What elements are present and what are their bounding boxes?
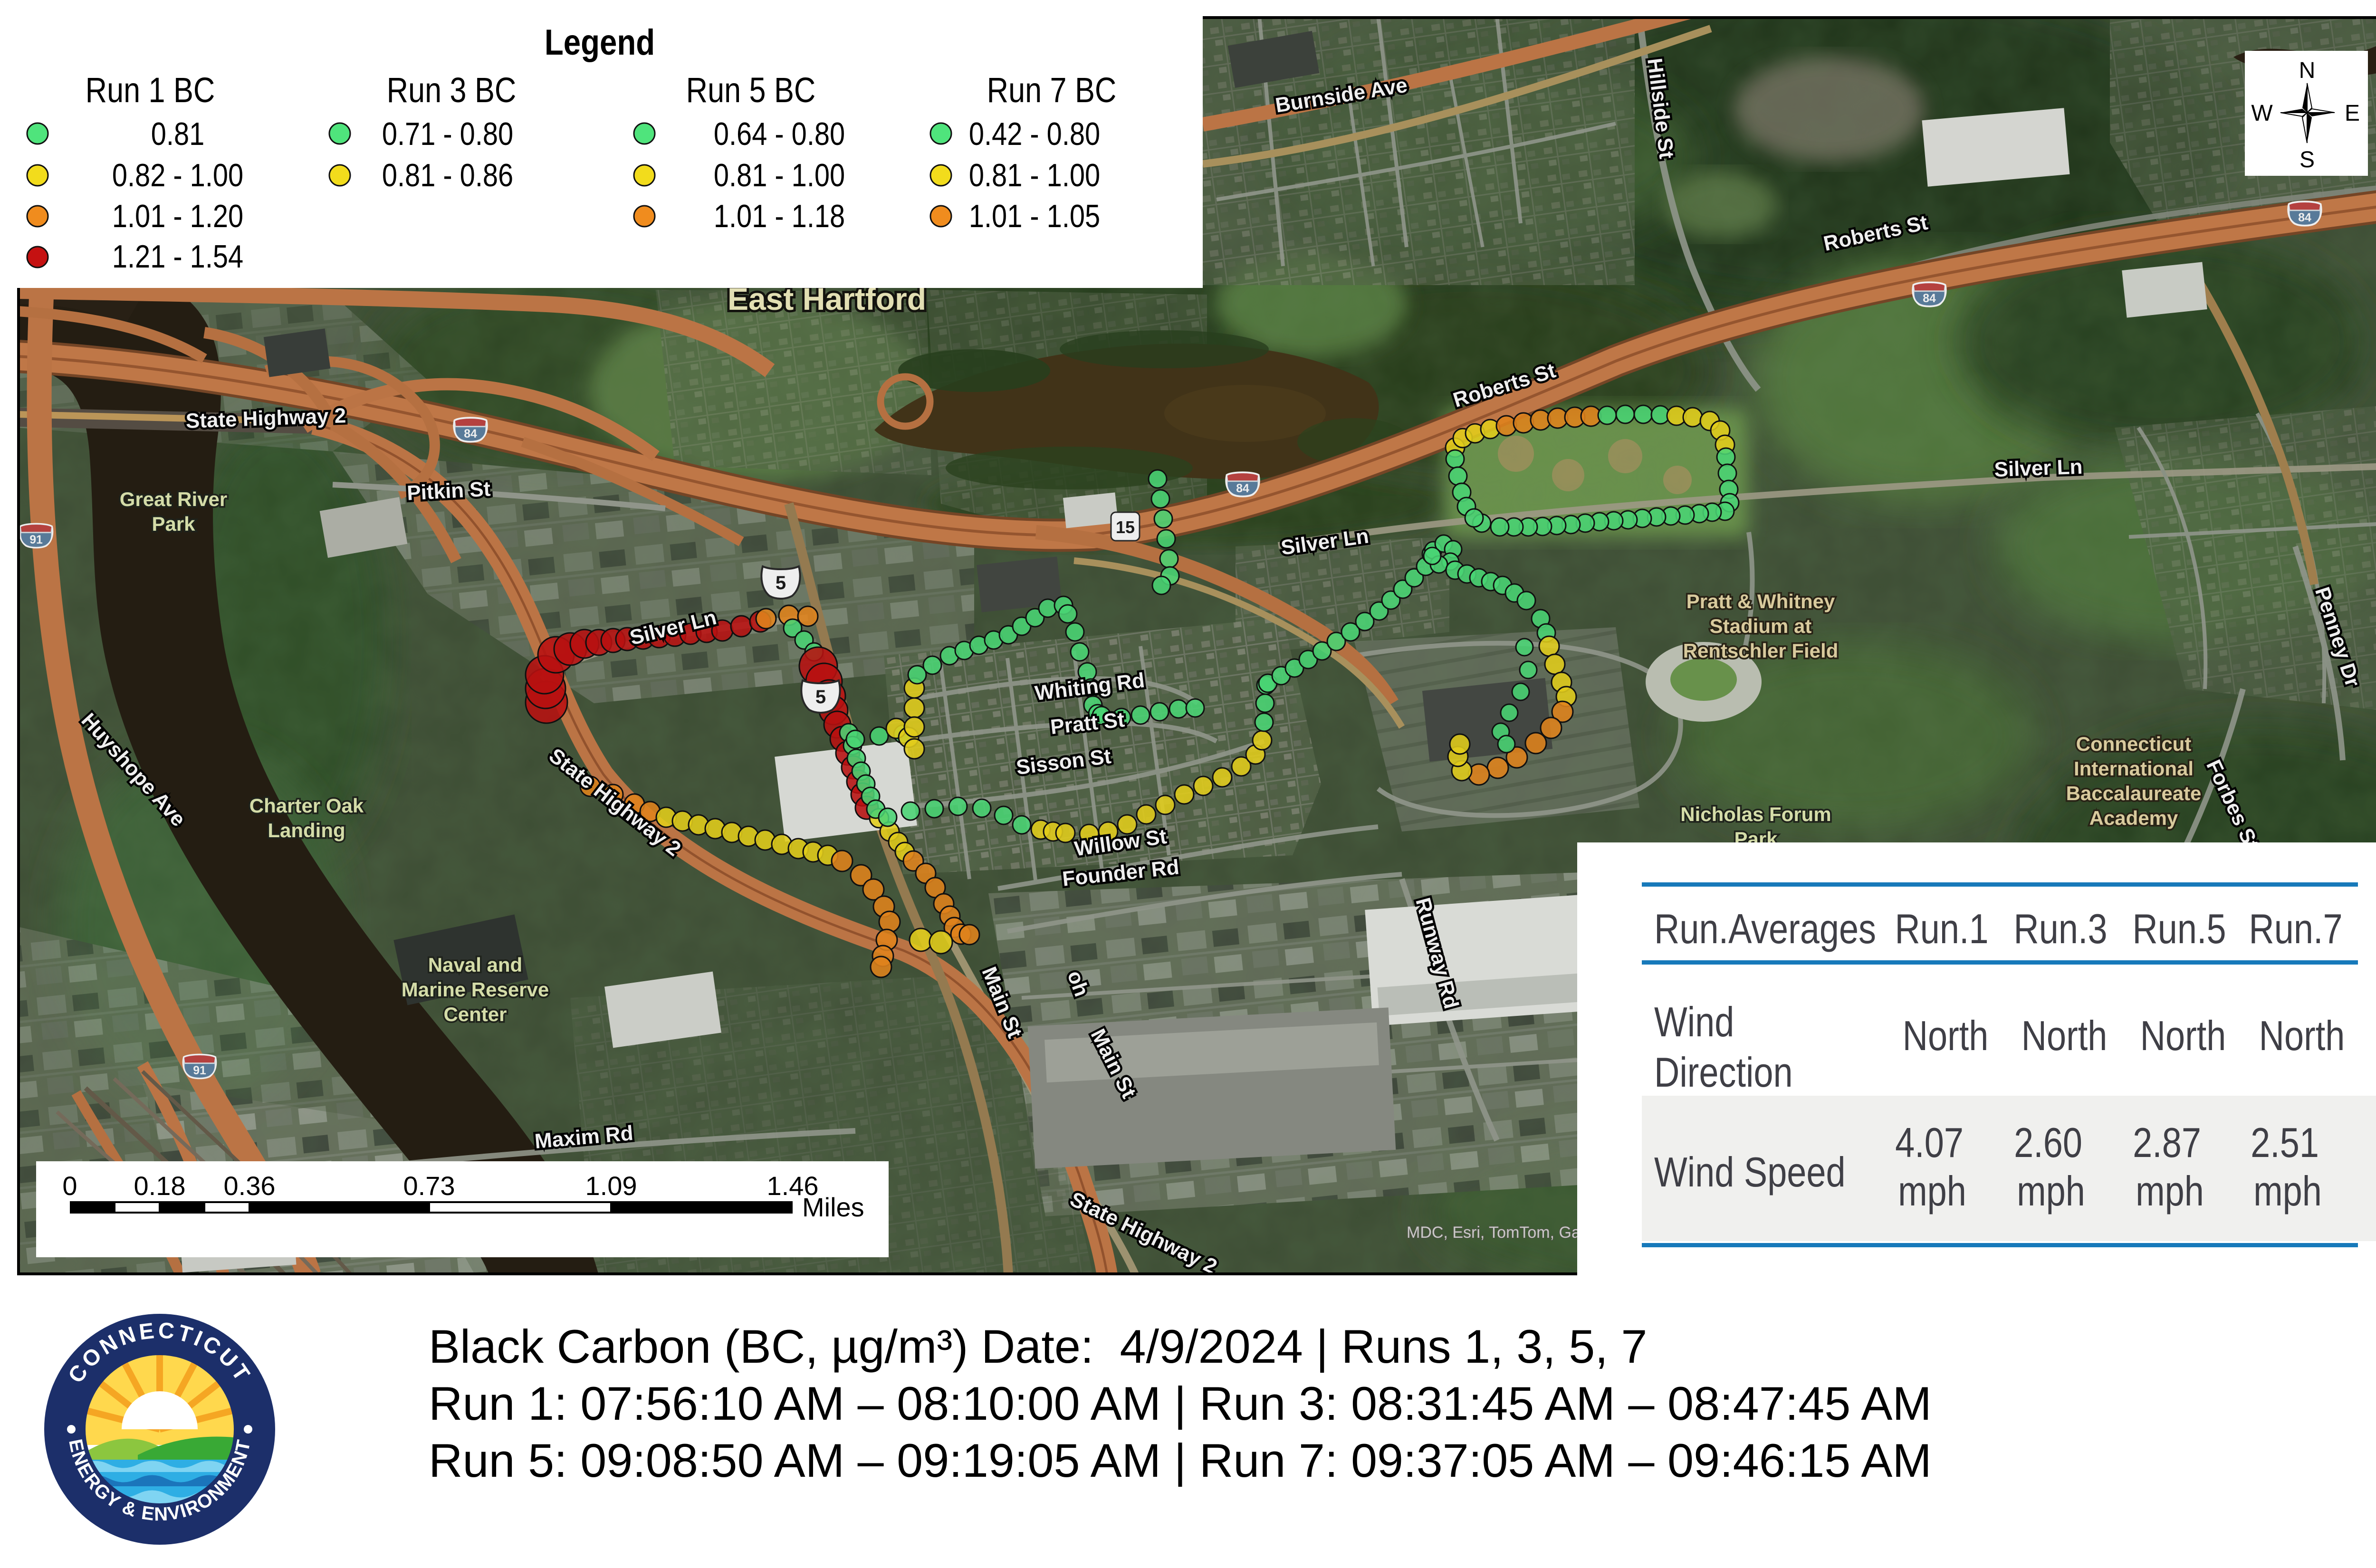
svg-text:Run.3: Run.3 (2013, 906, 2107, 953)
svg-text:mph: mph (2253, 1168, 2322, 1215)
svg-text:1.01 - 1.18: 1.01 - 1.18 (714, 199, 845, 234)
svg-text:0.81: 0.81 (151, 116, 204, 152)
svg-text:0.18: 0.18 (134, 1171, 186, 1201)
svg-text:mph: mph (2136, 1168, 2204, 1215)
svg-text:mph: mph (1898, 1168, 1966, 1215)
svg-text:4.07: 4.07 (1895, 1119, 1964, 1166)
svg-text:North: North (2259, 1013, 2345, 1060)
svg-text:0.36: 0.36 (224, 1171, 276, 1201)
svg-text:Run.Averages: Run.Averages (1654, 906, 1876, 953)
svg-text:W: W (2251, 101, 2273, 126)
svg-text:0.71 - 0.80: 0.71 - 0.80 (382, 116, 513, 152)
svg-text:Miles: Miles (802, 1192, 864, 1222)
svg-text:North: North (2140, 1013, 2226, 1060)
svg-text:Run 7 BC: Run 7 BC (987, 70, 1117, 110)
svg-text:Run.5: Run.5 (2132, 906, 2226, 953)
svg-text:Run.1: Run.1 (1895, 906, 1988, 953)
svg-text:0.73: 0.73 (403, 1171, 455, 1201)
svg-text:North: North (2022, 1013, 2108, 1060)
svg-text:North: North (1903, 1013, 1989, 1060)
svg-text:0.81 - 1.00: 0.81 - 1.00 (969, 158, 1100, 193)
svg-text:0.82 - 1.00: 0.82 - 1.00 (112, 158, 243, 193)
svg-text:S: S (2299, 147, 2315, 172)
svg-text:1.01 - 1.20: 1.01 - 1.20 (112, 199, 243, 234)
svg-text:mph: mph (2017, 1168, 2085, 1215)
svg-text:N: N (2299, 58, 2316, 83)
svg-text:Wind: Wind (1654, 999, 1734, 1046)
svg-text:Run 5 BC: Run 5 BC (686, 70, 816, 110)
svg-text:Legend: Legend (545, 22, 655, 63)
svg-text:1.09: 1.09 (585, 1171, 637, 1201)
svg-text:Direction: Direction (1654, 1049, 1793, 1096)
svg-text:1.01 - 1.05: 1.01 - 1.05 (969, 199, 1100, 234)
svg-text:Run.7: Run.7 (2249, 906, 2342, 953)
svg-text:Run 1 BC: Run 1 BC (86, 70, 215, 110)
svg-text:0.81 - 1.00: 0.81 - 1.00 (714, 158, 845, 193)
svg-text:0: 0 (62, 1171, 77, 1201)
svg-text:2.60: 2.60 (2014, 1119, 2082, 1166)
svg-text:0.81 - 0.86: 0.81 - 0.86 (382, 158, 513, 193)
svg-text:0.64 - 0.80: 0.64 - 0.80 (714, 116, 845, 152)
svg-text:1.21 - 1.54: 1.21 - 1.54 (112, 239, 243, 275)
svg-text:2.87: 2.87 (2133, 1119, 2201, 1166)
svg-text:Wind Speed: Wind Speed (1654, 1149, 1846, 1196)
svg-text:0.42 - 0.80: 0.42 - 0.80 (969, 116, 1100, 152)
svg-text:2.51: 2.51 (2251, 1119, 2319, 1166)
svg-text:E: E (2345, 101, 2360, 126)
svg-text:Run 3 BC: Run 3 BC (387, 70, 517, 110)
